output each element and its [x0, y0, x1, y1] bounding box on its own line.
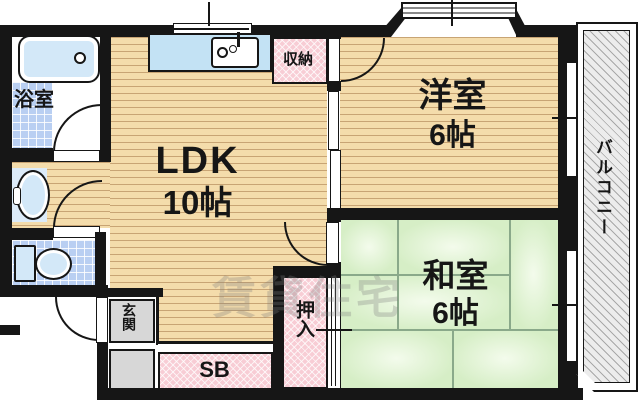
sliding-panel-upper: [328, 91, 339, 150]
wall-bath-bottom: [10, 148, 53, 162]
wall-bottom: [97, 388, 583, 400]
door-arc-bathroom: [53, 104, 102, 152]
wall-partition-seg: [327, 208, 341, 222]
wall-toilet-bottom: [0, 285, 108, 297]
storage-label: 収納: [272, 52, 324, 67]
entrance-label: 玄関: [122, 303, 136, 331]
western-room-label: 洋室: [395, 79, 510, 113]
bay-window-opening: [391, 25, 516, 37]
door-arc-front: [55, 297, 99, 341]
wall-left: [0, 25, 12, 297]
wall-partition-seg: [327, 25, 341, 39]
sink-drain: [217, 47, 228, 58]
entrance-step-line: [156, 290, 159, 345]
door-leaf-front: [96, 297, 108, 343]
door-leaf-western-room: [328, 38, 340, 82]
washbasin: [16, 170, 50, 220]
washbasin-handle: [13, 187, 21, 205]
kitchen-window-line: [174, 28, 249, 30]
japanese-room-size-label: 6帖: [398, 299, 513, 329]
kitchen-window-tick: [208, 2, 210, 26]
japanese-room-label: 和室: [398, 259, 513, 292]
tatami-line: [452, 331, 454, 388]
shoebox-label: SB: [158, 359, 271, 381]
ldk-size-label: 10帖: [130, 186, 265, 219]
western-room-size-label: 6帖: [395, 121, 510, 151]
tatami-mat: [341, 329, 452, 388]
oshiire-label: 押入: [294, 300, 313, 338]
bathtub-drain: [74, 52, 86, 64]
wall-washstand-bottom: [10, 228, 53, 240]
tatami-mat: [509, 220, 558, 329]
fusuma-tick: [316, 329, 352, 331]
toilet-bowl: [35, 248, 72, 280]
floor-plan: バルコニー 賃貸住宅 LDK 10帖 洋室 6帖 和室 6帖 浴室 収納 押入 …: [0, 0, 640, 400]
door-leaf-bathroom: [53, 150, 100, 162]
wall-bath-right: [100, 30, 111, 162]
wall-toilet-right: [95, 232, 106, 290]
sliding-panel-lower: [330, 150, 341, 209]
bathtub: [18, 35, 100, 83]
faucet: [237, 32, 240, 47]
door-leaf-toilet: [53, 226, 100, 238]
tatami-mat: [452, 329, 558, 388]
faucet-base: [229, 45, 237, 53]
entrance-floor-lower: [109, 349, 155, 391]
toilet-tank: [14, 245, 36, 282]
window-western-room: [566, 62, 577, 177]
wall-stub-outside: [0, 325, 20, 335]
balcony-label: バルコニー: [594, 138, 611, 238]
window-japanese-room: [566, 250, 577, 362]
bathroom-label: 浴室: [14, 90, 74, 110]
door-leaf-japanese-room: [326, 222, 339, 264]
wall-western-japanese: [340, 208, 558, 220]
wall-partition-seg: [327, 81, 341, 91]
ldk-label: LDK: [130, 142, 265, 180]
